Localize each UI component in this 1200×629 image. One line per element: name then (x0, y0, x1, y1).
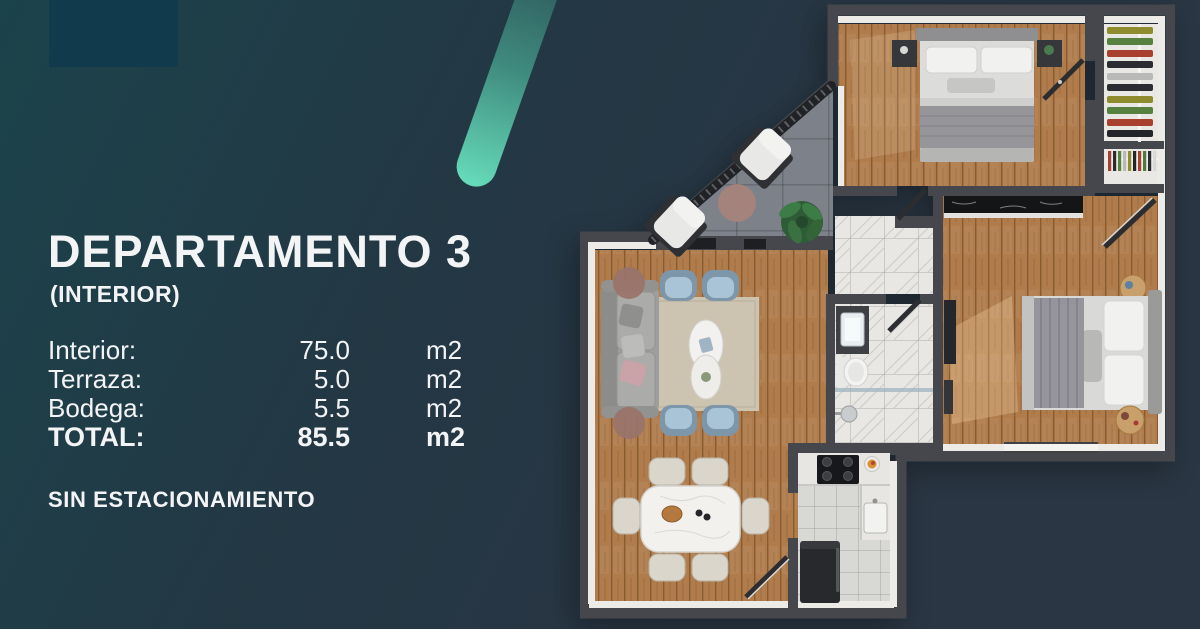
armchair (702, 405, 739, 436)
sofa (601, 280, 659, 418)
refrigerator (800, 541, 840, 603)
area-unit: m2 (350, 394, 468, 423)
armchair (660, 270, 697, 301)
floor-plan-svg (580, 0, 1175, 629)
flyer-page: { "panel": { "title": "DEPARTAMENTO 3", … (0, 0, 1200, 629)
area-unit: m2 (350, 365, 468, 394)
area-total-value: 85.5 (258, 423, 350, 452)
armchair (702, 270, 739, 301)
nightstand (1037, 40, 1062, 67)
diagonal-accent-stripe (451, 0, 565, 192)
area-label: Interior: (48, 336, 258, 365)
round-side-table (613, 407, 645, 439)
side-table (1116, 406, 1144, 434)
area-value: 5.5 (258, 394, 350, 423)
master-bed (916, 28, 1038, 162)
area-value: 5.0 (258, 365, 350, 394)
page-title: DEPARTAMENTO 3 (48, 226, 472, 278)
shower-glass (835, 388, 933, 392)
floor-plan (580, 0, 1175, 629)
kitchen-sink (864, 499, 887, 534)
round-side-table (613, 267, 645, 299)
dresser-counter (944, 196, 1083, 218)
toilet (836, 357, 868, 387)
nightstand (892, 40, 917, 67)
armchair (660, 405, 697, 436)
stove (817, 455, 859, 484)
bedroom2-bed (1022, 290, 1162, 414)
area-label: Bodega: (48, 394, 258, 423)
no-parking-note: SIN ESTACIONAMIENTO (48, 487, 315, 513)
area-total-unit: m2 (350, 423, 468, 452)
dining-table (641, 486, 740, 552)
pan (865, 457, 880, 472)
area-unit: m2 (350, 336, 468, 365)
page-subtitle: (INTERIOR) (50, 281, 180, 308)
terrace-table (718, 184, 756, 222)
area-table: Interior: 75.0 m2 Terraza: 5.0 m2 Bodega… (48, 336, 468, 452)
area-value: 75.0 (258, 336, 350, 365)
bedroom2-window (1004, 442, 1098, 453)
area-total-label: TOTAL: (48, 423, 258, 452)
coffee-table (689, 320, 723, 399)
hall-door (898, 190, 925, 219)
area-label: Terraza: (48, 365, 258, 394)
corner-accent-rectangle (49, 0, 178, 67)
bathroom-vanity (836, 306, 869, 354)
